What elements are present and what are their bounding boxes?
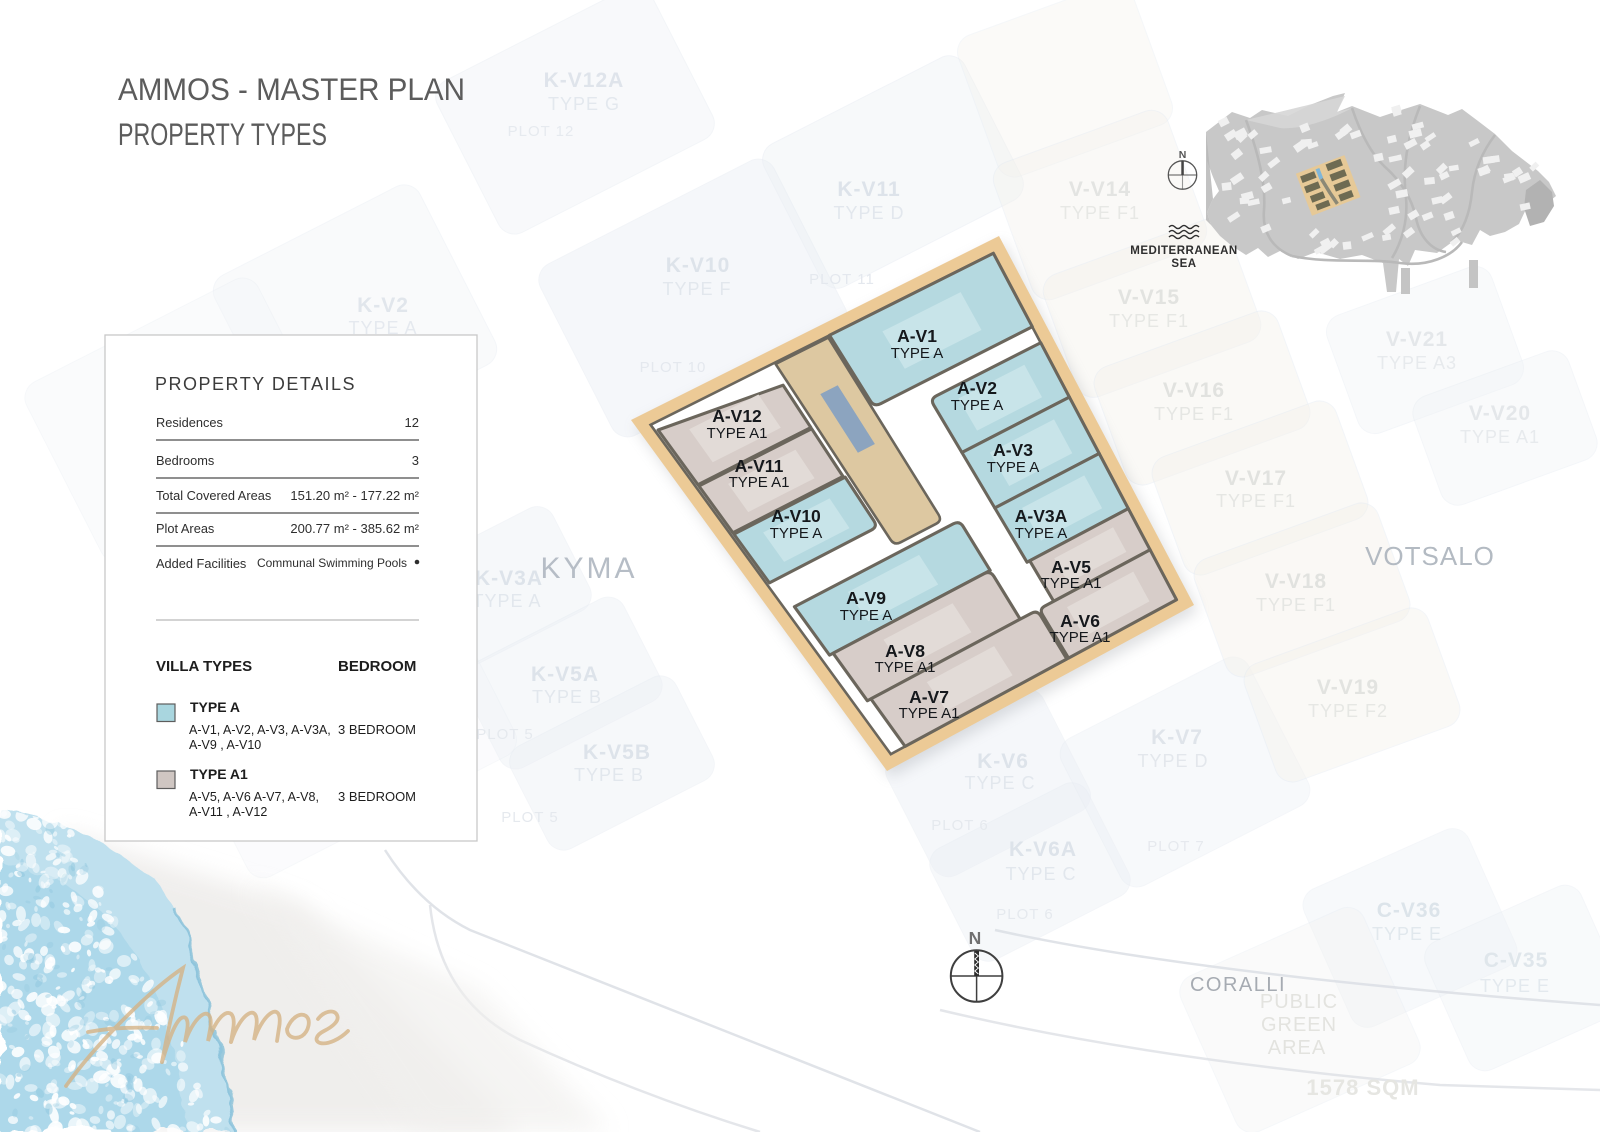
svg-text:TYPE A: TYPE A bbox=[190, 699, 240, 715]
svg-text:V-V17: V-V17 bbox=[1225, 467, 1287, 490]
svg-text:V-V15: V-V15 bbox=[1118, 286, 1180, 309]
svg-text:3 BEDROOM: 3 BEDROOM bbox=[338, 722, 416, 737]
svg-text:TYPE D: TYPE D bbox=[833, 203, 904, 223]
svg-text:CORALLI: CORALLI bbox=[1190, 974, 1286, 996]
svg-text:TYPE E: TYPE E bbox=[1372, 924, 1442, 944]
svg-text:Added Facilities: Added Facilities bbox=[156, 556, 246, 571]
svg-text:PLOT 11: PLOT 11 bbox=[809, 271, 875, 288]
svg-text:PROPERTY TYPES: PROPERTY TYPES bbox=[118, 116, 327, 152]
svg-text:A-V9: A-V9 bbox=[846, 588, 886, 608]
svg-text:TYPE A: TYPE A bbox=[987, 459, 1040, 476]
svg-text:K-V7: K-V7 bbox=[1151, 726, 1203, 749]
svg-text:N: N bbox=[969, 928, 982, 948]
svg-text:V-V20: V-V20 bbox=[1469, 402, 1531, 425]
svg-text:A-V2: A-V2 bbox=[957, 378, 997, 398]
svg-text:TYPE F1: TYPE F1 bbox=[1060, 203, 1140, 223]
svg-text:TYPE A: TYPE A bbox=[951, 397, 1004, 414]
svg-text:TYPE A: TYPE A bbox=[472, 591, 541, 611]
svg-text:C-V35: C-V35 bbox=[1484, 949, 1549, 972]
svg-text:3 BEDROOM: 3 BEDROOM bbox=[338, 789, 416, 804]
svg-text:A-V8: A-V8 bbox=[885, 641, 925, 661]
svg-text:A-V5: A-V5 bbox=[1051, 557, 1091, 577]
svg-text:V-V14: V-V14 bbox=[1069, 178, 1131, 201]
svg-text:1578 SQM: 1578 SQM bbox=[1306, 1075, 1419, 1100]
svg-text:V-V19: V-V19 bbox=[1317, 676, 1379, 699]
svg-text:TYPE A1: TYPE A1 bbox=[899, 705, 960, 722]
svg-text:TYPE A1: TYPE A1 bbox=[190, 766, 248, 782]
svg-text:C-V36: C-V36 bbox=[1377, 899, 1442, 922]
svg-text:TYPE A1: TYPE A1 bbox=[875, 659, 936, 676]
svg-text:VILLA TYPES: VILLA TYPES bbox=[156, 658, 252, 675]
svg-text:PLOT 5: PLOT 5 bbox=[501, 809, 558, 826]
svg-text:PLOT 6: PLOT 6 bbox=[931, 817, 988, 834]
svg-text:A-V3: A-V3 bbox=[993, 440, 1033, 460]
svg-text:K-V5A: K-V5A bbox=[531, 663, 599, 686]
svg-text:MEDITERRANEAN: MEDITERRANEAN bbox=[1130, 245, 1237, 257]
svg-text:K-V6: K-V6 bbox=[977, 750, 1029, 773]
svg-text:TYPE C: TYPE C bbox=[1005, 864, 1076, 884]
svg-text:K-V10: K-V10 bbox=[666, 254, 731, 277]
svg-text:A-V3A: A-V3A bbox=[1015, 506, 1068, 526]
svg-text:Residences: Residences bbox=[156, 415, 223, 430]
svg-text:K-V11: K-V11 bbox=[837, 178, 900, 201]
svg-text:A-V10: A-V10 bbox=[771, 506, 821, 526]
svg-text:K-V3A: K-V3A bbox=[475, 567, 543, 590]
svg-text:TYPE B: TYPE B bbox=[532, 687, 602, 707]
svg-text:TYPE A: TYPE A bbox=[770, 525, 823, 542]
svg-text:A-V11 , A-V12: A-V11 , A-V12 bbox=[189, 805, 267, 819]
svg-text:TYPE A: TYPE A bbox=[891, 345, 944, 362]
svg-text:TYPE F1: TYPE F1 bbox=[1154, 404, 1234, 424]
svg-text:TYPE A1: TYPE A1 bbox=[1041, 575, 1102, 592]
svg-text:A-V1, A-V2, A-V3, A-V3A,: A-V1, A-V2, A-V3, A-V3A, bbox=[189, 723, 331, 737]
svg-text:K-V5B: K-V5B bbox=[583, 741, 651, 764]
svg-text:N: N bbox=[1179, 149, 1187, 161]
svg-text:151.20 m² - 177.22 m²: 151.20 m² - 177.22 m² bbox=[290, 488, 419, 503]
svg-text:TYPE A1: TYPE A1 bbox=[707, 425, 768, 442]
svg-text:A-V12: A-V12 bbox=[712, 406, 762, 426]
svg-text:BEDROOM: BEDROOM bbox=[338, 658, 416, 675]
svg-text:TYPE B: TYPE B bbox=[574, 765, 644, 785]
svg-text:A-V7: A-V7 bbox=[909, 687, 949, 707]
svg-text:TYPE A1: TYPE A1 bbox=[1460, 427, 1540, 447]
svg-text:K-V2: K-V2 bbox=[357, 294, 409, 317]
svg-text:AMMOS - MASTER PLAN: AMMOS - MASTER PLAN bbox=[118, 71, 465, 107]
svg-text:A-V5, A-V6 A-V7, A-V8,: A-V5, A-V6 A-V7, A-V8, bbox=[189, 790, 319, 804]
svg-text:Bedrooms: Bedrooms bbox=[156, 453, 214, 468]
svg-text:V-V18: V-V18 bbox=[1265, 570, 1327, 593]
svg-text:V-V21: V-V21 bbox=[1386, 328, 1448, 351]
svg-text:PLOT 12: PLOT 12 bbox=[508, 123, 575, 140]
svg-text:TYPE E: TYPE E bbox=[1480, 976, 1550, 996]
svg-text:GREEN: GREEN bbox=[1261, 1014, 1337, 1036]
svg-text:TYPE D: TYPE D bbox=[1137, 751, 1208, 771]
svg-text:K-V6A: K-V6A bbox=[1009, 838, 1077, 861]
svg-text:TYPE F1: TYPE F1 bbox=[1256, 595, 1336, 615]
svg-text:TYPE A: TYPE A bbox=[1015, 525, 1068, 542]
svg-text:TYPE A1: TYPE A1 bbox=[1050, 629, 1111, 646]
svg-text:200.77 m² - 385.62 m²: 200.77 m² - 385.62 m² bbox=[290, 521, 419, 536]
svg-text:TYPE G: TYPE G bbox=[548, 94, 620, 114]
svg-text:PLOT 5: PLOT 5 bbox=[476, 726, 533, 743]
svg-text:3: 3 bbox=[412, 453, 419, 468]
svg-text:SEA: SEA bbox=[1171, 258, 1196, 270]
svg-text:TYPE F2: TYPE F2 bbox=[1308, 701, 1388, 721]
svg-text:TYPE F: TYPE F bbox=[662, 279, 731, 299]
svg-text:A-V1: A-V1 bbox=[897, 326, 937, 346]
svg-text:TYPE A: TYPE A bbox=[840, 607, 893, 624]
svg-text:K-V12A: K-V12A bbox=[544, 69, 625, 92]
svg-text:A-V6: A-V6 bbox=[1060, 611, 1100, 631]
svg-text:12: 12 bbox=[405, 415, 419, 430]
svg-text:TYPE A1: TYPE A1 bbox=[729, 474, 790, 491]
svg-text:AREA: AREA bbox=[1268, 1037, 1326, 1059]
svg-text:A-V9 , A-V10: A-V9 , A-V10 bbox=[189, 738, 261, 752]
svg-text:Communal Swimming Pools: Communal Swimming Pools bbox=[257, 556, 407, 570]
svg-text:TYPE F1: TYPE F1 bbox=[1216, 491, 1296, 511]
svg-text:VOTSALO: VOTSALO bbox=[1365, 541, 1495, 571]
svg-text:TYPE F1: TYPE F1 bbox=[1109, 311, 1189, 331]
svg-text:V-V16: V-V16 bbox=[1163, 379, 1225, 402]
svg-text:KYMA: KYMA bbox=[540, 552, 637, 585]
svg-text:A-V11: A-V11 bbox=[735, 456, 784, 476]
svg-text:Total Covered Areas: Total Covered Areas bbox=[156, 488, 271, 503]
svg-text:Plot Areas: Plot Areas bbox=[156, 521, 214, 536]
svg-text:TYPE C: TYPE C bbox=[964, 773, 1035, 793]
svg-text:PROPERTY DETAILS: PROPERTY DETAILS bbox=[155, 374, 356, 394]
svg-text:PLOT 10: PLOT 10 bbox=[640, 359, 707, 376]
svg-text:PLOT 6: PLOT 6 bbox=[996, 906, 1053, 923]
svg-text:TYPE A3: TYPE A3 bbox=[1377, 353, 1457, 373]
svg-text:PLOT 7: PLOT 7 bbox=[1147, 838, 1204, 855]
